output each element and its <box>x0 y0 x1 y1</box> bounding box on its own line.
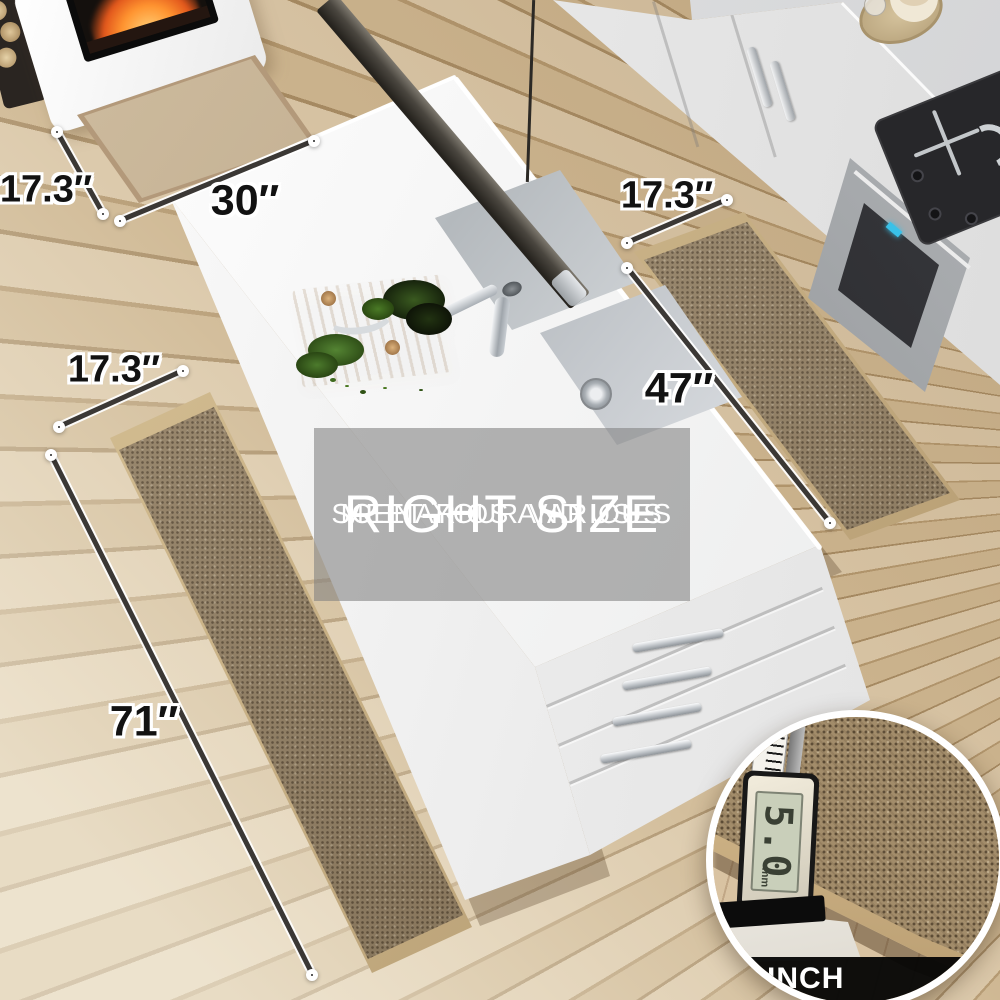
dimension-label-side-rug-width: 17.3″ <box>621 175 713 218</box>
product-photo-kitchen-rugs: RIGHT SIZE MEET YOUR VARIOUS SCENARIOS A… <box>0 0 1000 1000</box>
dimension-label-front-mat-width: 17.3″ <box>0 169 92 212</box>
dimension-label-runner-width: 17.3″ <box>68 349 160 392</box>
mezzaluna-handle <box>321 291 336 306</box>
dimension-dot <box>53 421 65 433</box>
caliper-body: 5.0 mm <box>736 770 819 914</box>
wok-ring <box>961 119 1000 174</box>
dimension-dot <box>306 969 318 981</box>
log <box>0 46 19 70</box>
dimension-dot <box>177 365 189 377</box>
dimension-dot <box>308 135 320 147</box>
dimension-dot <box>824 517 836 529</box>
burner-cap <box>963 210 980 227</box>
caliper-display: 5.0 mm <box>750 791 803 893</box>
thickness-label: 0.2 INCH <box>713 957 896 1000</box>
overlay-subtitle-2: SCENARIOS AND USES <box>331 498 672 530</box>
thickness-band: 0.2 INCH <box>713 957 1000 1000</box>
dimension-dot <box>97 208 109 220</box>
mezzaluna-handle <box>385 340 400 355</box>
thickness-inset: 5.0 mm 0.2 INCH <box>706 710 1000 1000</box>
dimension-dot <box>721 194 733 206</box>
log <box>0 20 22 44</box>
burner-grate-bar <box>932 110 962 176</box>
dimension-dot <box>114 215 126 227</box>
dimension-label-side-rug-length: 47″ <box>645 365 713 414</box>
dimension-dot <box>621 262 633 274</box>
dimension-dot <box>45 449 57 461</box>
garbage-disposal-drain <box>580 378 612 410</box>
dark-greens <box>406 303 452 335</box>
chopped-herbs <box>296 352 338 378</box>
burner-cap <box>909 167 926 184</box>
dimension-label-front-mat-length: 30″ <box>211 177 279 226</box>
caliper-unit: mm <box>758 867 771 887</box>
herb-scatter <box>330 378 336 382</box>
size-overlay: RIGHT SIZE MEET YOUR VARIOUS SCENARIOS A… <box>314 428 690 601</box>
log <box>0 0 9 23</box>
dimension-dot <box>621 237 633 249</box>
dimension-dot <box>51 126 63 138</box>
burner-cap <box>927 205 944 222</box>
dimension-label-runner-length: 71″ <box>110 698 178 747</box>
